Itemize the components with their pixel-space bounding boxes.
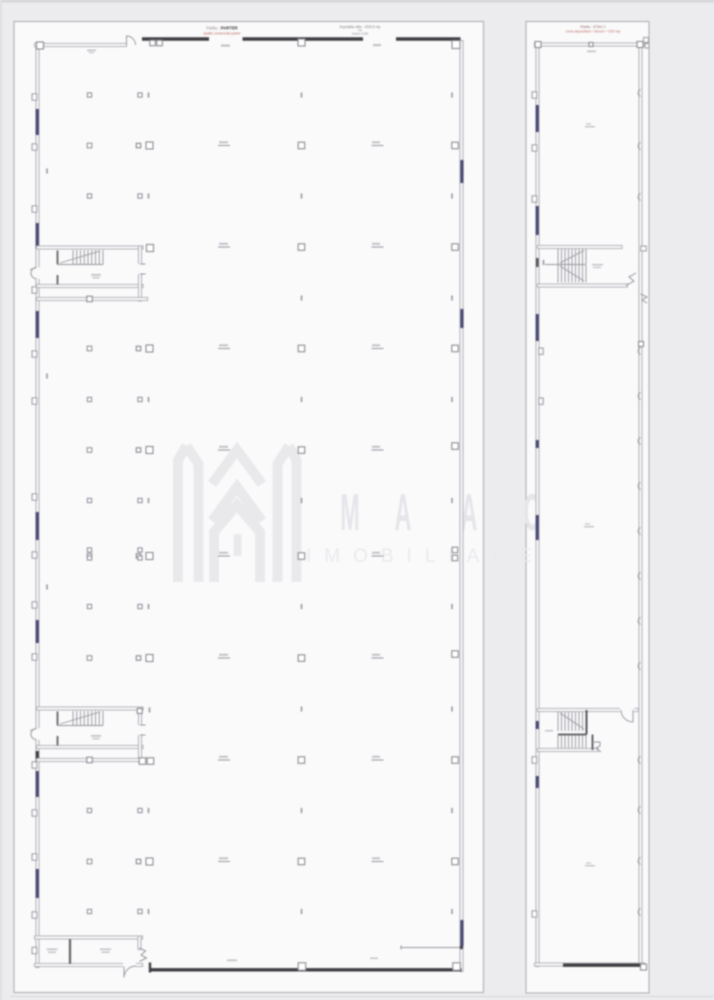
svg-text:Scara 1:100: Scara 1:100 <box>352 32 369 36</box>
svg-text:Partiu : PARTER: Partiu : PARTER <box>206 26 237 31</box>
svg-text:M: M <box>340 482 359 541</box>
svg-text:A: A <box>395 482 412 541</box>
svg-text:zona depozitare / birouri + 52: zona depozitare / birouri + 520 mp <box>566 30 621 34</box>
svg-text:IMOBILIARE: IMOBILIARE <box>306 546 545 567</box>
svg-text:Partiu : ETAJ 1: Partiu : ETAJ 1 <box>580 25 605 29</box>
svg-text:spatiu comercial parter: spatiu comercial parter <box>203 32 241 36</box>
